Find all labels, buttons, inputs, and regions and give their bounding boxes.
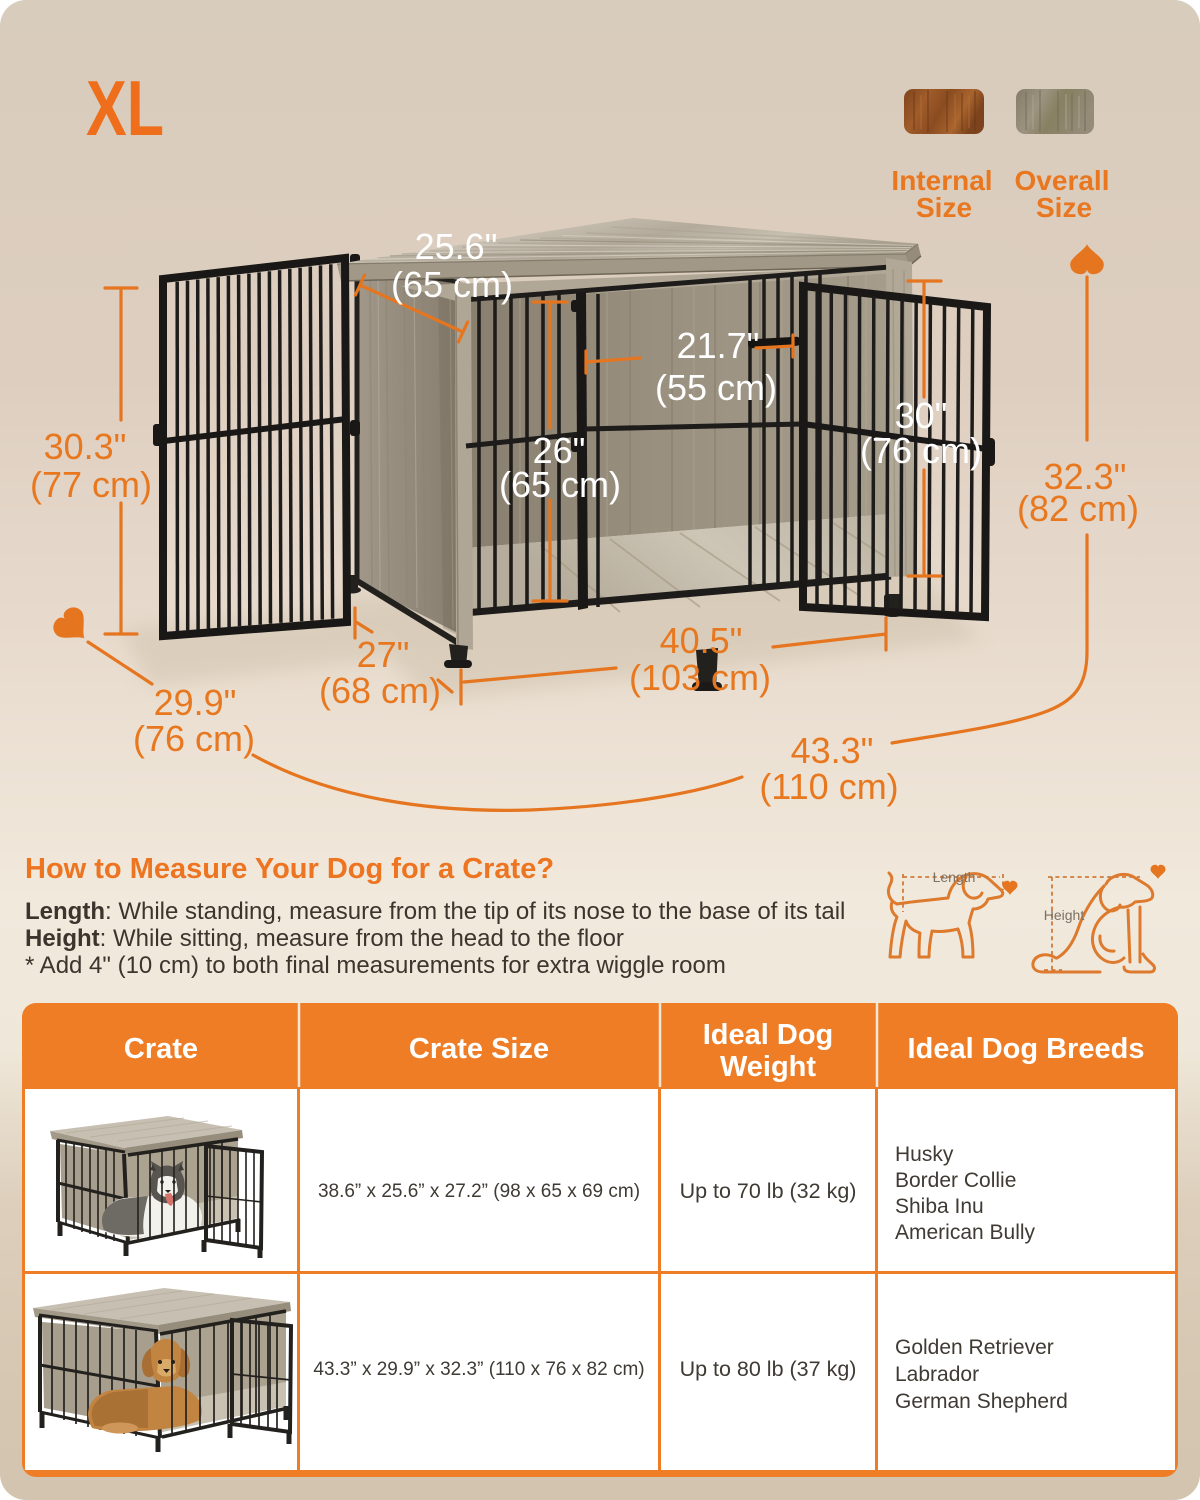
svg-text:38.6” x 25.6” x 27.2” (98 x 65: 38.6” x 25.6” x 27.2” (98 x 65 x 69 cm): [318, 1181, 640, 1202]
svg-text:43.3” x 29.9” x 32.3” (110 x 7: 43.3” x 29.9” x 32.3” (110 x 76 x 82 cm): [313, 1359, 644, 1380]
svg-text:30.3": 30.3": [44, 426, 127, 467]
svg-text:(77 cm): (77 cm): [30, 464, 152, 505]
svg-text:Length: While standing, measu: Length: While standing, measure from the…: [25, 898, 845, 925]
svg-text:43.3": 43.3": [791, 730, 874, 771]
svg-text:40.5": 40.5": [660, 620, 743, 661]
svg-text:(76 cm): (76 cm): [133, 718, 255, 759]
svg-text:Shiba Inu: Shiba Inu: [895, 1195, 984, 1218]
svg-text:American Bully: American Bully: [895, 1221, 1036, 1244]
svg-text:XL: XL: [86, 64, 164, 152]
svg-text:(82 cm): (82 cm): [1017, 488, 1139, 529]
svg-text:Husky: Husky: [895, 1143, 954, 1166]
svg-text:Ideal Dog Breeds: Ideal Dog Breeds: [908, 1033, 1145, 1065]
svg-text:How to Measure Your Dog for a: How to Measure Your Dog for a Crate?: [25, 853, 554, 885]
svg-text:* Add 4" (10 cm) to both final: * Add 4" (10 cm) to both final measureme…: [25, 952, 726, 979]
svg-text:(68 cm): (68 cm): [319, 670, 441, 711]
svg-text:Up to 70 lb (32 kg): Up to 70 lb (32 kg): [680, 1179, 857, 1203]
svg-text:Crate Size: Crate Size: [409, 1033, 549, 1065]
svg-text:Ideal Dog: Ideal Dog: [703, 1019, 834, 1051]
svg-text:Crate: Crate: [124, 1033, 198, 1065]
svg-text:(103 cm): (103 cm): [629, 657, 771, 698]
svg-text:25.6": 25.6": [415, 226, 498, 267]
svg-text:Up to 80 lb (37 kg): Up to 80 lb (37 kg): [680, 1357, 857, 1381]
svg-text:Border Collie: Border Collie: [895, 1169, 1016, 1192]
svg-text:27": 27": [357, 634, 410, 675]
svg-text:Length: Length: [933, 869, 976, 885]
svg-text:Height: While sitting, measure: Height: While sitting, measure from the …: [25, 925, 624, 952]
svg-text:21.7": 21.7": [677, 325, 760, 366]
svg-text:German Shepherd: German Shepherd: [895, 1390, 1068, 1413]
svg-text:29.9": 29.9": [154, 682, 237, 723]
svg-text:(65 cm): (65 cm): [499, 464, 621, 505]
svg-text:Weight: Weight: [720, 1051, 816, 1083]
svg-text:Labrador: Labrador: [895, 1363, 979, 1386]
svg-text:(55 cm): (55 cm): [655, 367, 777, 408]
svg-text:(76 cm): (76 cm): [860, 430, 982, 471]
svg-text:(65 cm): (65 cm): [391, 264, 513, 305]
svg-text:Size: Size: [1036, 192, 1092, 223]
svg-text:Size: Size: [916, 192, 972, 223]
svg-text:(110 cm): (110 cm): [759, 766, 898, 807]
svg-text:Height: Height: [1044, 907, 1085, 923]
svg-text:Golden Retriever: Golden Retriever: [895, 1336, 1054, 1359]
